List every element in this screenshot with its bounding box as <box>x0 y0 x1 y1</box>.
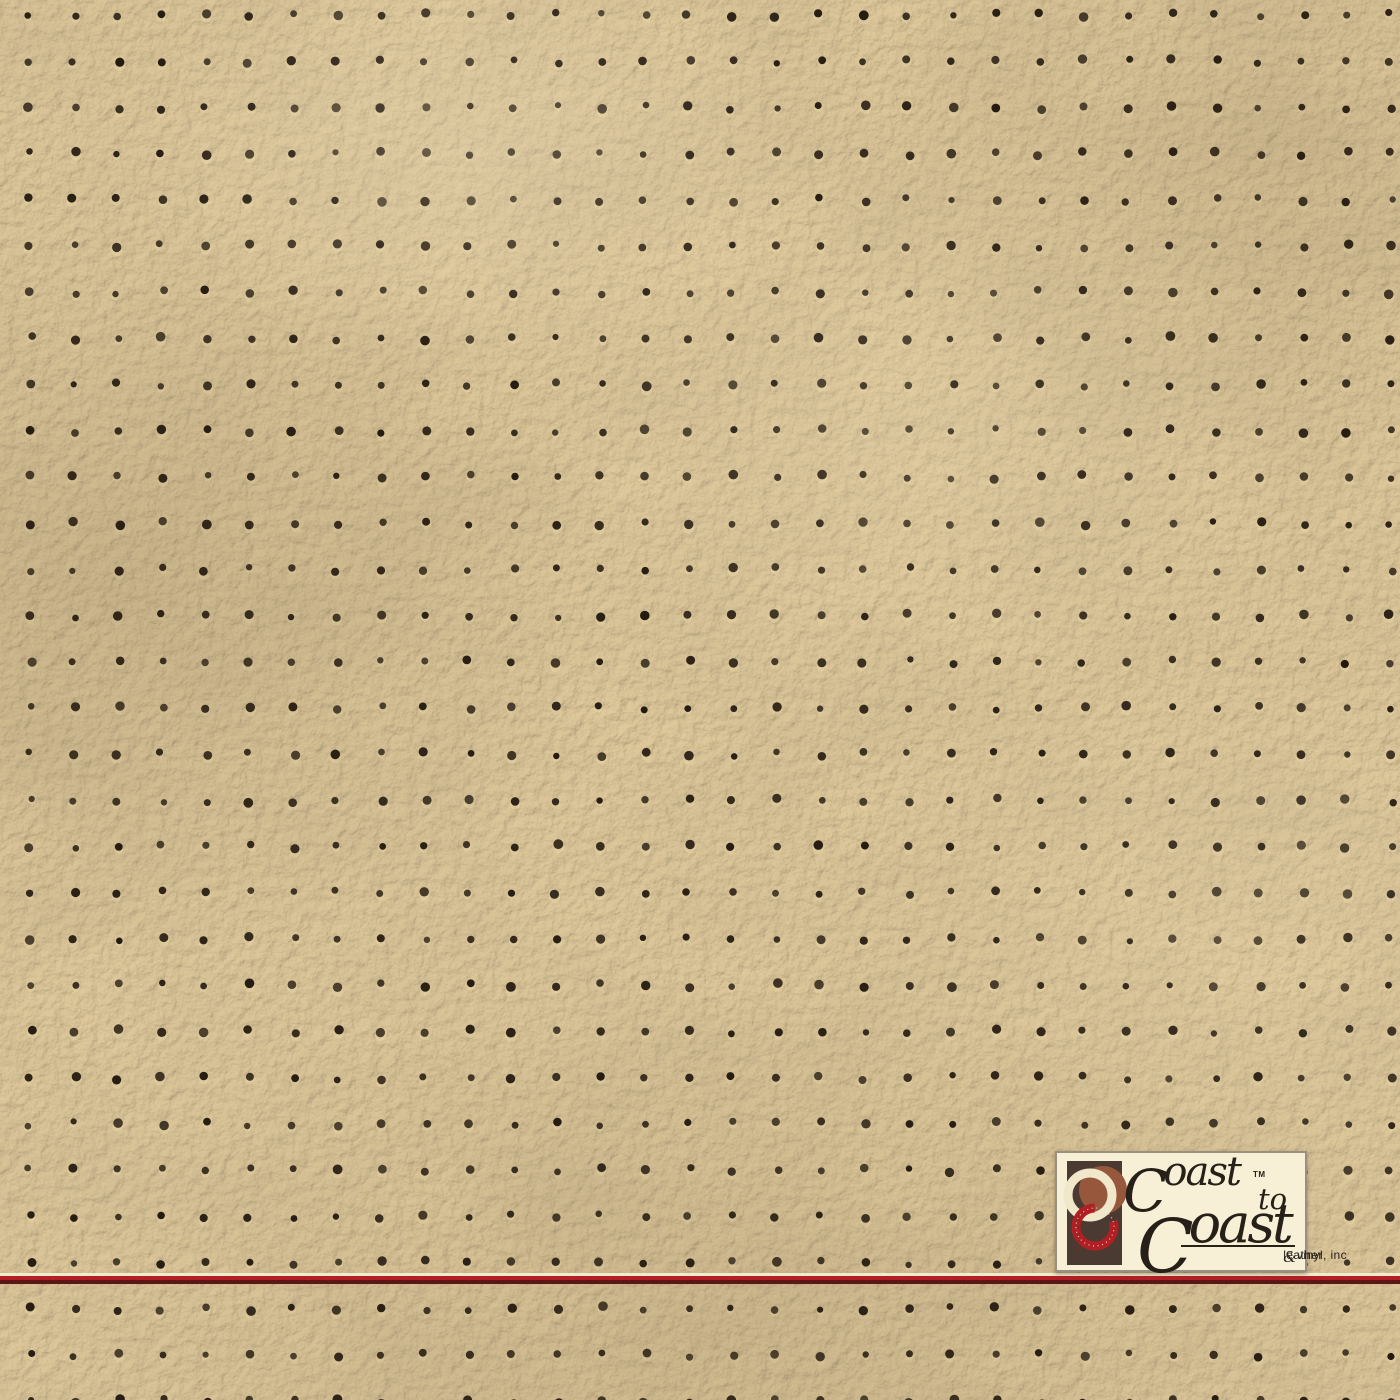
tagline-vinyl: vinyl, inc <box>1297 1248 1347 1262</box>
leather-swatch: Coast TM to Coast leather&vinyl, inc <box>0 0 1400 1400</box>
trademark-symbol: TM <box>1253 1170 1266 1179</box>
brand-name-line2: Coast <box>1137 1197 1291 1284</box>
brand-tagline: leather&vinyl, inc <box>1283 1248 1297 1266</box>
brand-logo-mark <box>1067 1161 1129 1265</box>
tagline-rule <box>1181 1245 1295 1247</box>
brand-logo-plate: Coast TM to Coast leather&vinyl, inc <box>1055 1151 1307 1272</box>
